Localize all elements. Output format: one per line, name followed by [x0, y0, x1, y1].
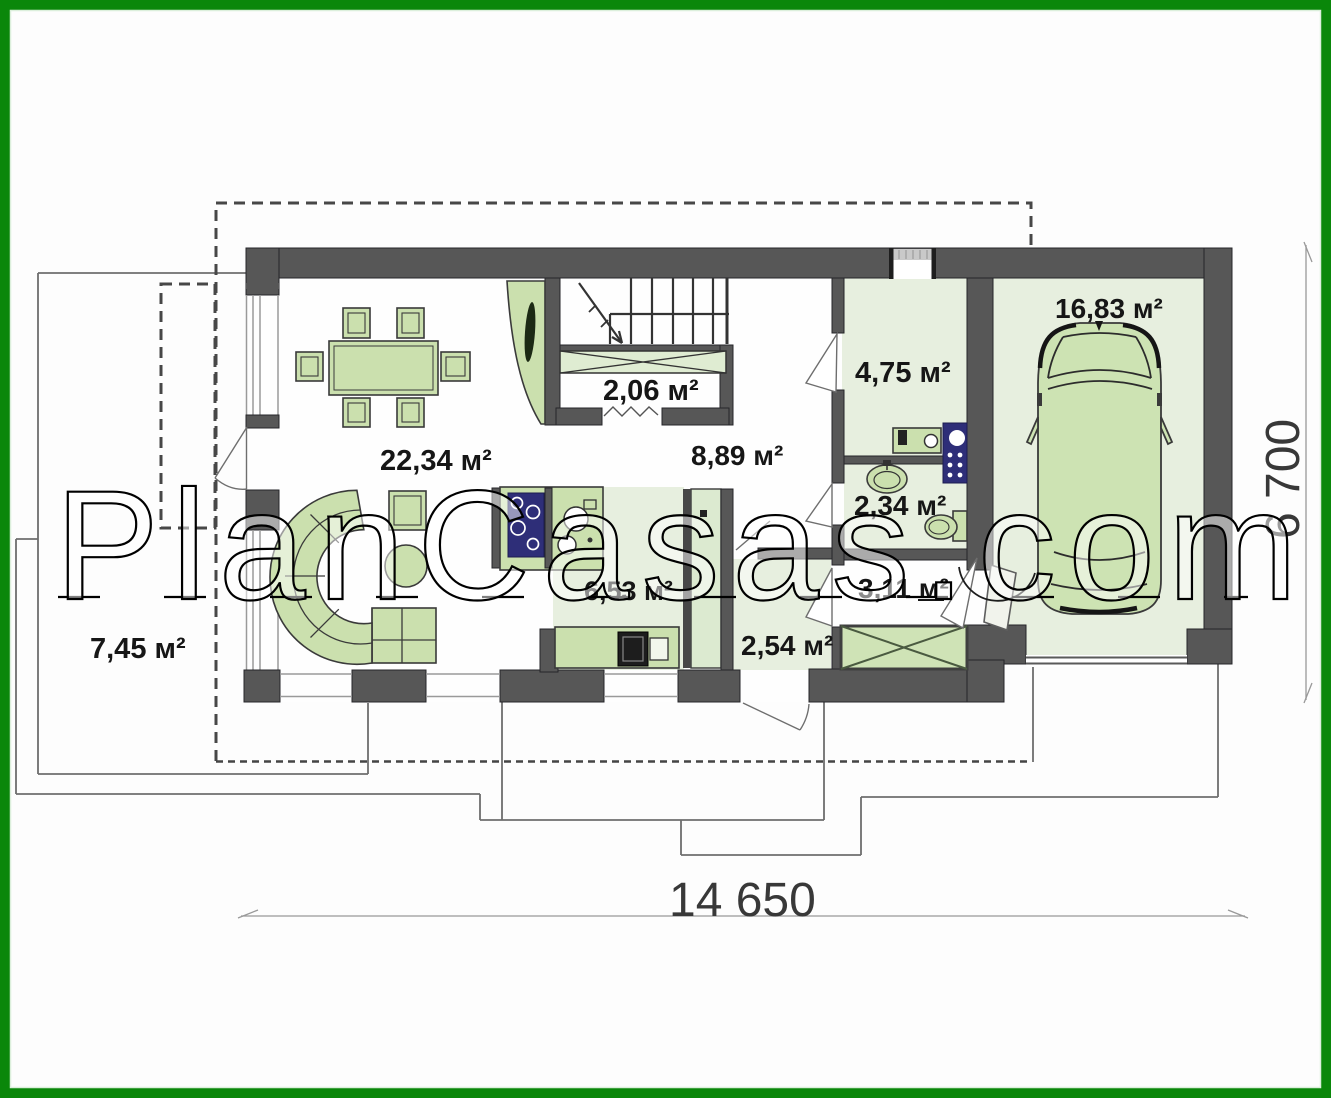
svg-text:14 650: 14 650	[669, 874, 816, 927]
svg-text:PlanCasas.com: PlanCasas.com	[55, 459, 1310, 633]
svg-text:16,83 м²: 16,83 м²	[1055, 293, 1163, 324]
svg-text:2,54 м²: 2,54 м²	[741, 630, 833, 661]
svg-text:7,45 м²: 7,45 м²	[90, 633, 186, 665]
svg-text:4,75 м²: 4,75 м²	[855, 357, 951, 389]
svg-text:2,06 м²: 2,06 м²	[603, 375, 699, 407]
